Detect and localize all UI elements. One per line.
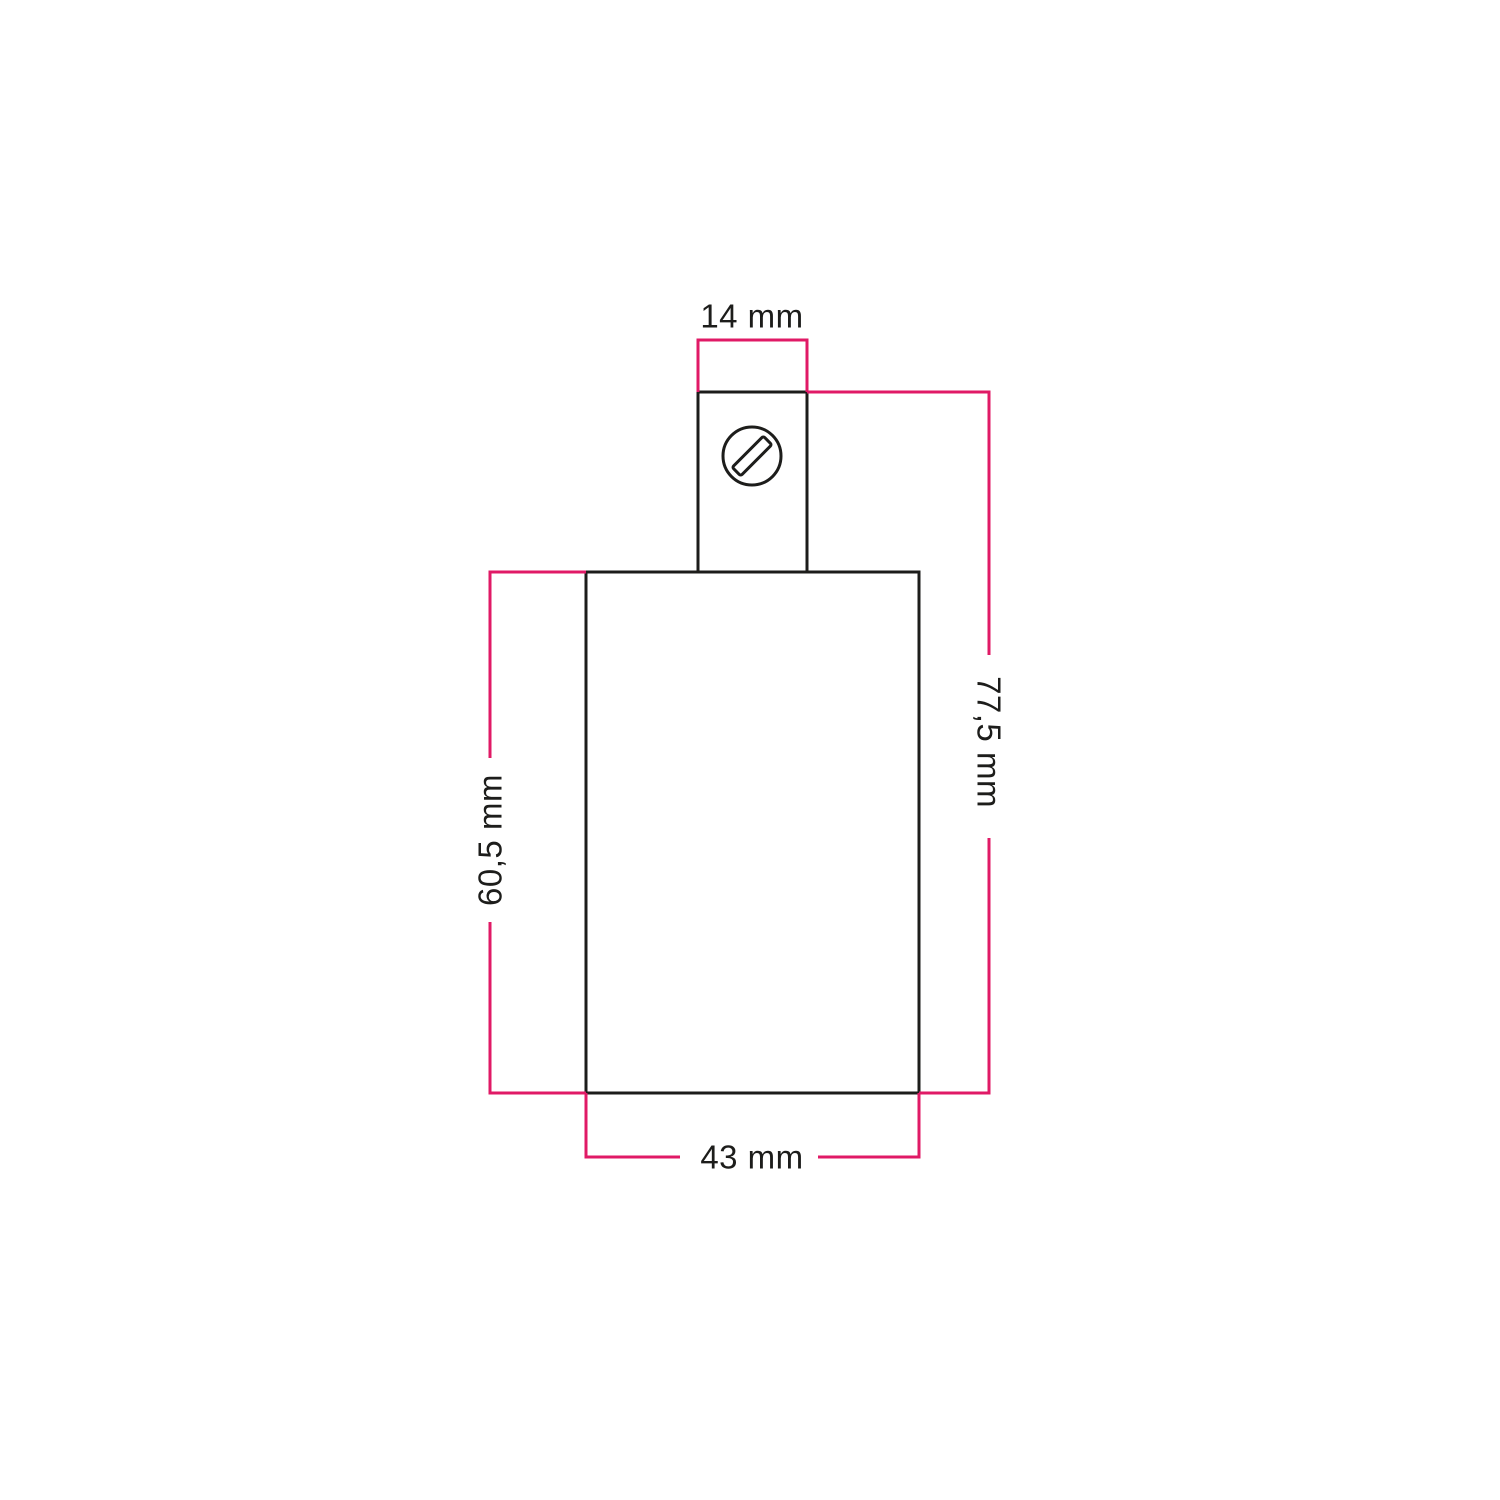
dimension-top-width-bracket (698, 340, 807, 392)
screw-slot (732, 436, 772, 476)
dimension-body-height-label: 60,5 mm (472, 774, 509, 906)
dimension-top-width-label: 14 mm (700, 298, 803, 335)
dimension-overall-height-line (807, 392, 989, 1093)
product-outline (586, 392, 919, 1093)
dimension-body-width-label: 43 mm (700, 1139, 803, 1176)
cable-clamp-outline (698, 392, 807, 572)
dimension-drawing: 14 mm 77,5 mm 60,5 mm 43 mm (0, 0, 1500, 1500)
socket-body-outline (586, 572, 919, 1093)
dimension-overall-height-label: 77,5 mm (971, 676, 1008, 808)
dimension-drawing-canvas: 14 mm 77,5 mm 60,5 mm 43 mm (0, 0, 1500, 1500)
screw-head-icon (723, 427, 781, 485)
